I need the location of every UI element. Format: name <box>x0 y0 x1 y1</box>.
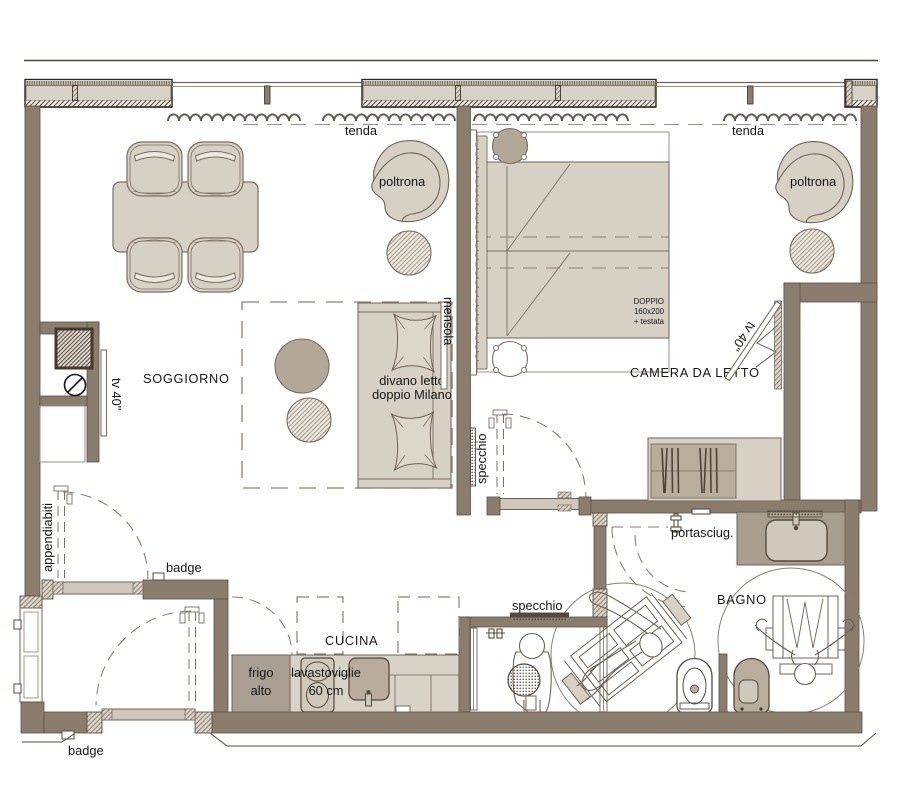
svg-text:poltrona: poltrona <box>790 174 837 189</box>
svg-text:BAGNO: BAGNO <box>717 592 767 607</box>
svg-text:CAMERA DA LETTO: CAMERA DA LETTO <box>630 365 760 380</box>
svg-text:alto: alto <box>251 683 272 698</box>
svg-text:SOGGIORNO: SOGGIORNO <box>143 371 230 386</box>
svg-text:specchio: specchio <box>474 433 489 484</box>
svg-text:specchio: specchio <box>512 598 563 613</box>
svg-text:tenda: tenda <box>345 123 378 138</box>
svg-text:badge: badge <box>166 560 202 575</box>
svg-text:badge: badge <box>68 743 104 758</box>
svg-text:mensola: mensola <box>441 297 456 346</box>
svg-text:lavastoviglie: lavastoviglie <box>291 665 361 680</box>
svg-text:160x200: 160x200 <box>634 307 665 316</box>
svg-text:60 cm: 60 cm <box>309 683 344 698</box>
svg-text:doppio Milano: doppio Milano <box>372 387 452 402</box>
svg-text:CUCINA: CUCINA <box>325 633 378 648</box>
svg-text:poltrona: poltrona <box>379 174 426 189</box>
svg-text:appendiabiti: appendiabiti <box>40 503 55 572</box>
svg-text:+ testata: + testata <box>634 317 665 326</box>
svg-text:tv 40": tv 40" <box>109 378 124 410</box>
svg-text:divano letto: divano letto <box>379 373 444 388</box>
svg-text:portasciug.: portasciug. <box>671 525 734 540</box>
svg-text:tenda: tenda <box>732 123 765 138</box>
svg-text:DOPPIO: DOPPIO <box>634 297 664 306</box>
svg-text:frigo: frigo <box>249 665 274 680</box>
